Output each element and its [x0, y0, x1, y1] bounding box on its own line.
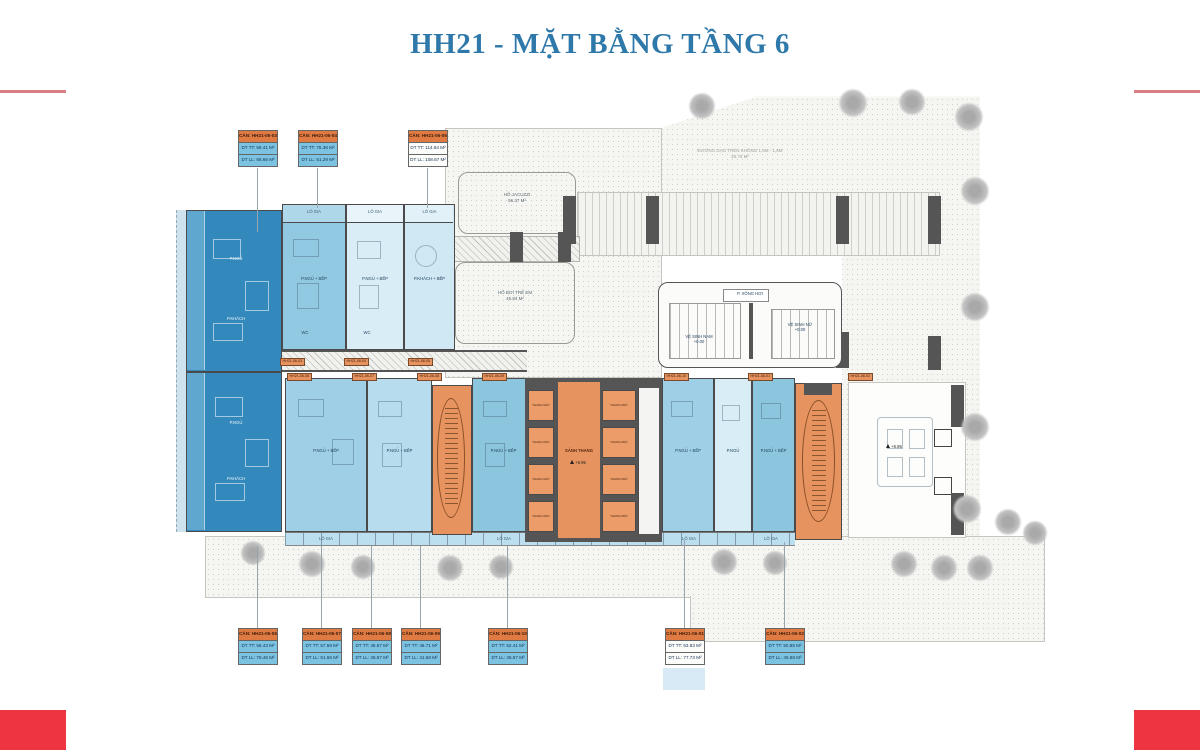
- callout-unit-code: CĂN: HH21-06-10: [489, 629, 527, 641]
- unit-tag: HH21-06-08: [417, 373, 442, 381]
- kids-pool-label: HỒ BƠI TRẺ EM 45.84 M²: [455, 290, 575, 301]
- unit-callout-bottom-5: CĂN: HH21-06-10 DT TT: 52.41 M² DT LL: 4…: [488, 628, 528, 665]
- callout-area-tt: DT TT: 57.58 M²: [303, 641, 341, 653]
- callout-unit-code: CĂN: HH21-06-05: [409, 131, 447, 143]
- furniture: [483, 401, 507, 417]
- callout-area-ll: DT LL: 45.88 M²: [766, 653, 804, 664]
- tree-icon: [952, 494, 982, 524]
- callout-highlight: [663, 668, 705, 690]
- kids-pool: [455, 262, 575, 344]
- tree-icon: [890, 550, 918, 578]
- tree-icon: [1022, 520, 1048, 546]
- callout-area-tt: DT TT: 56.43 M²: [239, 641, 277, 653]
- leader-line: [784, 542, 785, 628]
- elevator-shaft: THANG MÁY: [602, 427, 636, 458]
- unit-tag: HH21-06-05: [408, 358, 433, 366]
- restroom-stalls-female: [771, 309, 835, 359]
- callout-area-tt: DT TT: 59.41 M²: [239, 143, 277, 155]
- furniture: [298, 399, 324, 417]
- callout-area-ll: DT LL: 51.66 M²: [303, 653, 341, 664]
- tree-icon: [488, 554, 514, 580]
- tree-icon: [240, 540, 266, 566]
- unit-tag: HH21-06-10: [664, 373, 689, 381]
- room-label: P.NGỦ + BẾP: [284, 276, 344, 281]
- callout-area-tt: DT TT: 75.36 M²: [299, 143, 337, 155]
- tree-icon: [960, 176, 990, 206]
- elevator-shaft: THANG MÁY: [528, 427, 554, 458]
- callout-area-tt: DT TT: 50.85 M²: [766, 641, 804, 653]
- unit-callout-bottom-6: CĂN: HH21-06-01 DT TT: 63.83 M² DT LL: 7…: [665, 628, 705, 665]
- elevator-shaft: THANG MÁY: [528, 390, 554, 421]
- lounge-furniture: [909, 429, 925, 449]
- apartment-unit-08: [367, 378, 432, 532]
- furniture: [215, 483, 245, 501]
- elevator-shaft: THANG MÁY: [528, 464, 554, 495]
- leader-line: [317, 168, 318, 208]
- room-label: P.NGỦ + BẾP: [367, 448, 432, 453]
- jacuzzi-label: HỒ JACUZZI 56.37 M²: [458, 192, 576, 203]
- pillar: [928, 196, 941, 244]
- floor-plan-page: HH21 - MẶT BẰNG TẦNG 6 ĐƯỜNG DẠO TRÊN KH…: [0, 0, 1200, 750]
- pillar: [646, 196, 659, 244]
- furniture: [485, 443, 505, 467]
- kids-pool-area: 45.84 M²: [455, 296, 575, 302]
- apartment-unit-10: [662, 378, 714, 532]
- elevator-shaft: THANG MÁY: [602, 464, 636, 495]
- loggia-label: LÔ GIA: [750, 536, 792, 541]
- leader-line: [507, 546, 508, 628]
- tree-icon: [966, 554, 994, 582]
- terrace-lower-right: [690, 596, 1045, 642]
- stair-steps: [445, 408, 458, 508]
- room-label: P.KHÁCH + BẾP: [404, 276, 455, 281]
- room-label: P.NGỦ + BẾP: [285, 448, 367, 453]
- leader-line: [257, 546, 258, 628]
- room-label: P.NGỦ: [206, 256, 266, 261]
- tree-icon: [960, 412, 990, 442]
- unit-tag: HH21-06-02: [848, 373, 873, 381]
- callout-unit-code: CĂN: HH21-06-09: [402, 629, 440, 641]
- furniture: [722, 405, 740, 421]
- callout-area-ll: DT LL: 66.66 M²: [239, 155, 277, 166]
- room-label: P.KHÁCH: [206, 476, 266, 481]
- callout-unit-code: CĂN: HH21-06-08: [353, 629, 391, 641]
- unit-tag: HH21-06-07: [352, 373, 377, 381]
- lobby-level-value: +6.95: [575, 460, 586, 465]
- furniture: [293, 239, 319, 257]
- balcony-rail-strip: [176, 210, 186, 532]
- tree-icon: [350, 554, 376, 580]
- lobby-label: SẢNH THANG: [558, 448, 600, 453]
- callout-unit-code: CĂN: HH21-06-06: [239, 629, 277, 641]
- furniture: [245, 439, 269, 467]
- lounge-furniture: [909, 457, 925, 477]
- unit-tag: HH21-06-03: [280, 358, 305, 366]
- callout-area-ll: DT LL: 108.67 M²: [409, 155, 447, 166]
- furniture: [382, 443, 402, 467]
- tree-icon: [710, 548, 738, 576]
- callout-unit-code: CĂN: HH21-06-01: [666, 629, 704, 641]
- level-marker-icon: [570, 460, 574, 464]
- leader-line: [420, 546, 421, 628]
- room-label: P.NGỦ + BẾP: [662, 448, 714, 453]
- callout-area-ll: DT LL: 45.87 M²: [489, 653, 527, 664]
- leader-line: [257, 168, 258, 232]
- apartment-unit-01: [714, 378, 752, 532]
- tree-icon: [688, 92, 716, 120]
- loggia-label: LÔ GIA: [668, 536, 710, 541]
- wc-male-level: +0.00: [694, 339, 705, 344]
- tree-icon: [930, 554, 958, 582]
- apartment-unit-03: [186, 210, 282, 372]
- terrace-decking: [577, 192, 940, 256]
- room-label: P.NGỦ + BẾP: [346, 276, 404, 281]
- room-label: P.NGỦ: [206, 420, 266, 425]
- tree-icon: [898, 88, 926, 116]
- room-label: P.NGỦ + BẾP: [752, 448, 795, 453]
- planter-box: [934, 429, 952, 447]
- furniture: [378, 401, 402, 417]
- lounge-area: [848, 382, 966, 538]
- callout-area-tt: DT TT: 63.83 M²: [666, 641, 704, 653]
- elevator-core: THANG MÁY THANG MÁY THANG MÁY THANG MÁY …: [525, 378, 662, 542]
- lobby-level-marker: +6.95: [570, 460, 586, 465]
- unit-tag: HH21-06-06: [287, 373, 312, 381]
- terrace-note: ĐƯỜNG DẠO TRÊN KHÔNG 1,6M - 1,8M 26.79 M…: [640, 148, 840, 159]
- tree-icon: [954, 102, 984, 132]
- furniture: [671, 401, 693, 417]
- stair-steps: [812, 410, 826, 512]
- unit-callout-bottom-2: CĂN: HH21-06-07 DT TT: 57.58 M² DT LL: 5…: [302, 628, 342, 665]
- callout-unit-code: CĂN: HH21-06-07: [303, 629, 341, 641]
- apartment-unit-07: [285, 378, 367, 532]
- unit-callout-bottom-1: CĂN: HH21-06-06 DT TT: 56.43 M² DT LL: 7…: [238, 628, 278, 665]
- wc-female-level: +0.00: [795, 327, 806, 332]
- unit-callout-bottom-4: CĂN: HH21-06-09 DT TT: 46.71 M² DT LL: 4…: [401, 628, 441, 665]
- apartment-unit-06: [186, 372, 282, 532]
- sauna-label: P. XÔNG HƠI: [722, 291, 778, 296]
- elevator-shaft: THANG MÁY: [602, 501, 636, 532]
- stair-core-west: [432, 385, 472, 535]
- wc-female-label: VỆ SINH NỮ+0.00: [768, 322, 832, 332]
- unit-callout-bottom-7: CĂN: HH21-06-02 DT TT: 50.85 M² DT LL: 4…: [765, 628, 805, 665]
- unit-tag: HH21-06-04: [344, 358, 369, 366]
- room-label: WC: [352, 330, 382, 335]
- jacuzzi-area: 56.37 M²: [458, 198, 576, 204]
- furniture: [415, 245, 437, 267]
- tree-icon: [994, 508, 1022, 536]
- corridor: [282, 350, 527, 372]
- lounge-level-marker: +6.95: [886, 444, 902, 449]
- level-marker-icon: [886, 444, 890, 448]
- restroom-stalls-male: [669, 303, 741, 359]
- room-label: P.NGỦ: [714, 448, 752, 453]
- apartment-unit-02: [752, 378, 795, 532]
- pillar: [558, 232, 571, 262]
- callout-area-ll: DT LL: 78.46 M²: [239, 653, 277, 664]
- room-label: WC: [290, 330, 320, 335]
- callout-area-ll: DT LL: 51.29 M²: [299, 155, 337, 166]
- unit-tag: HH21-06-09: [482, 373, 507, 381]
- service-rooms: [638, 388, 659, 534]
- loggia-label: LÔ GIA: [300, 536, 352, 541]
- loggia-label: LÔ GIA: [480, 536, 528, 541]
- callout-unit-code: CĂN: HH21-06-04: [299, 131, 337, 143]
- tree-icon: [960, 292, 990, 322]
- pillar: [836, 196, 849, 244]
- tree-icon: [436, 554, 464, 582]
- unit-callout-top-1: CĂN: HH21-06-03 DT TT: 59.41 M² DT LL: 6…: [238, 130, 278, 167]
- floor-plan: ĐƯỜNG DẠO TRÊN KHÔNG 1,6M - 1,8M 26.79 M…: [0, 0, 1200, 750]
- loggia-label: LÔ GIA: [346, 209, 404, 214]
- lounge-level-value: +6.95: [891, 444, 902, 449]
- furniture: [215, 397, 243, 417]
- leader-line: [371, 546, 372, 628]
- stair-wall: [804, 383, 832, 395]
- unit-balcony: [187, 211, 205, 370]
- restroom-wall: [749, 303, 753, 359]
- callout-area-tt: DT TT: 52.41 M²: [489, 641, 527, 653]
- unit-callout-top-3: CĂN: HH21-06-05 DT TT: 114.84 M² DT LL: …: [408, 130, 448, 167]
- leader-line: [321, 546, 322, 628]
- lounge-furniture: [887, 457, 903, 477]
- loggia-label: LÔ GIA: [404, 209, 455, 214]
- callout-area-ll: DT LL: 77.73 M²: [666, 653, 704, 664]
- callout-area-tt: DT TT: 114.84 M²: [409, 143, 447, 155]
- furniture: [357, 241, 381, 259]
- furniture: [245, 281, 269, 311]
- callout-unit-code: CĂN: HH21-06-02: [766, 629, 804, 641]
- elevator-shaft: THANG MÁY: [528, 501, 554, 532]
- loggia-label: LÔ GIA: [284, 209, 344, 214]
- callout-area-tt: DT TT: 46.71 M²: [402, 641, 440, 653]
- elevator-shaft: THANG MÁY: [602, 390, 636, 421]
- planter-box: [934, 477, 952, 495]
- furniture: [297, 283, 319, 309]
- furniture: [761, 403, 781, 419]
- callout-area-ll: DT LL: 41.58 M²: [402, 653, 440, 664]
- callout-area-tt: DT TT: 46.87 M²: [353, 641, 391, 653]
- unit-balcony: [187, 373, 205, 530]
- furniture: [359, 285, 379, 309]
- terrace-note-line2: 26.79 M²: [640, 154, 840, 160]
- furniture: [213, 323, 243, 341]
- unit-tag: HH21-06-01: [748, 373, 773, 381]
- room-label: P.NGỦ + BẾP: [472, 448, 535, 453]
- leader-line: [427, 168, 428, 208]
- callout-area-ll: DT LL: 45.87 M²: [353, 653, 391, 664]
- pillar: [928, 336, 941, 370]
- tree-icon: [838, 88, 868, 118]
- room-label: P.KHÁCH: [206, 316, 266, 321]
- leader-line: [684, 540, 685, 628]
- unit-callout-top-2: CĂN: HH21-06-04 DT TT: 75.36 M² DT LL: 5…: [298, 130, 338, 167]
- wc-male-label: VỆ SINH NAM+0.00: [664, 334, 734, 344]
- callout-unit-code: CĂN: HH21-06-03: [239, 131, 277, 143]
- pillar: [510, 232, 523, 262]
- unit-callout-bottom-3: CĂN: HH21-06-08 DT TT: 46.87 M² DT LL: 4…: [352, 628, 392, 665]
- stair-core-east: [795, 383, 842, 540]
